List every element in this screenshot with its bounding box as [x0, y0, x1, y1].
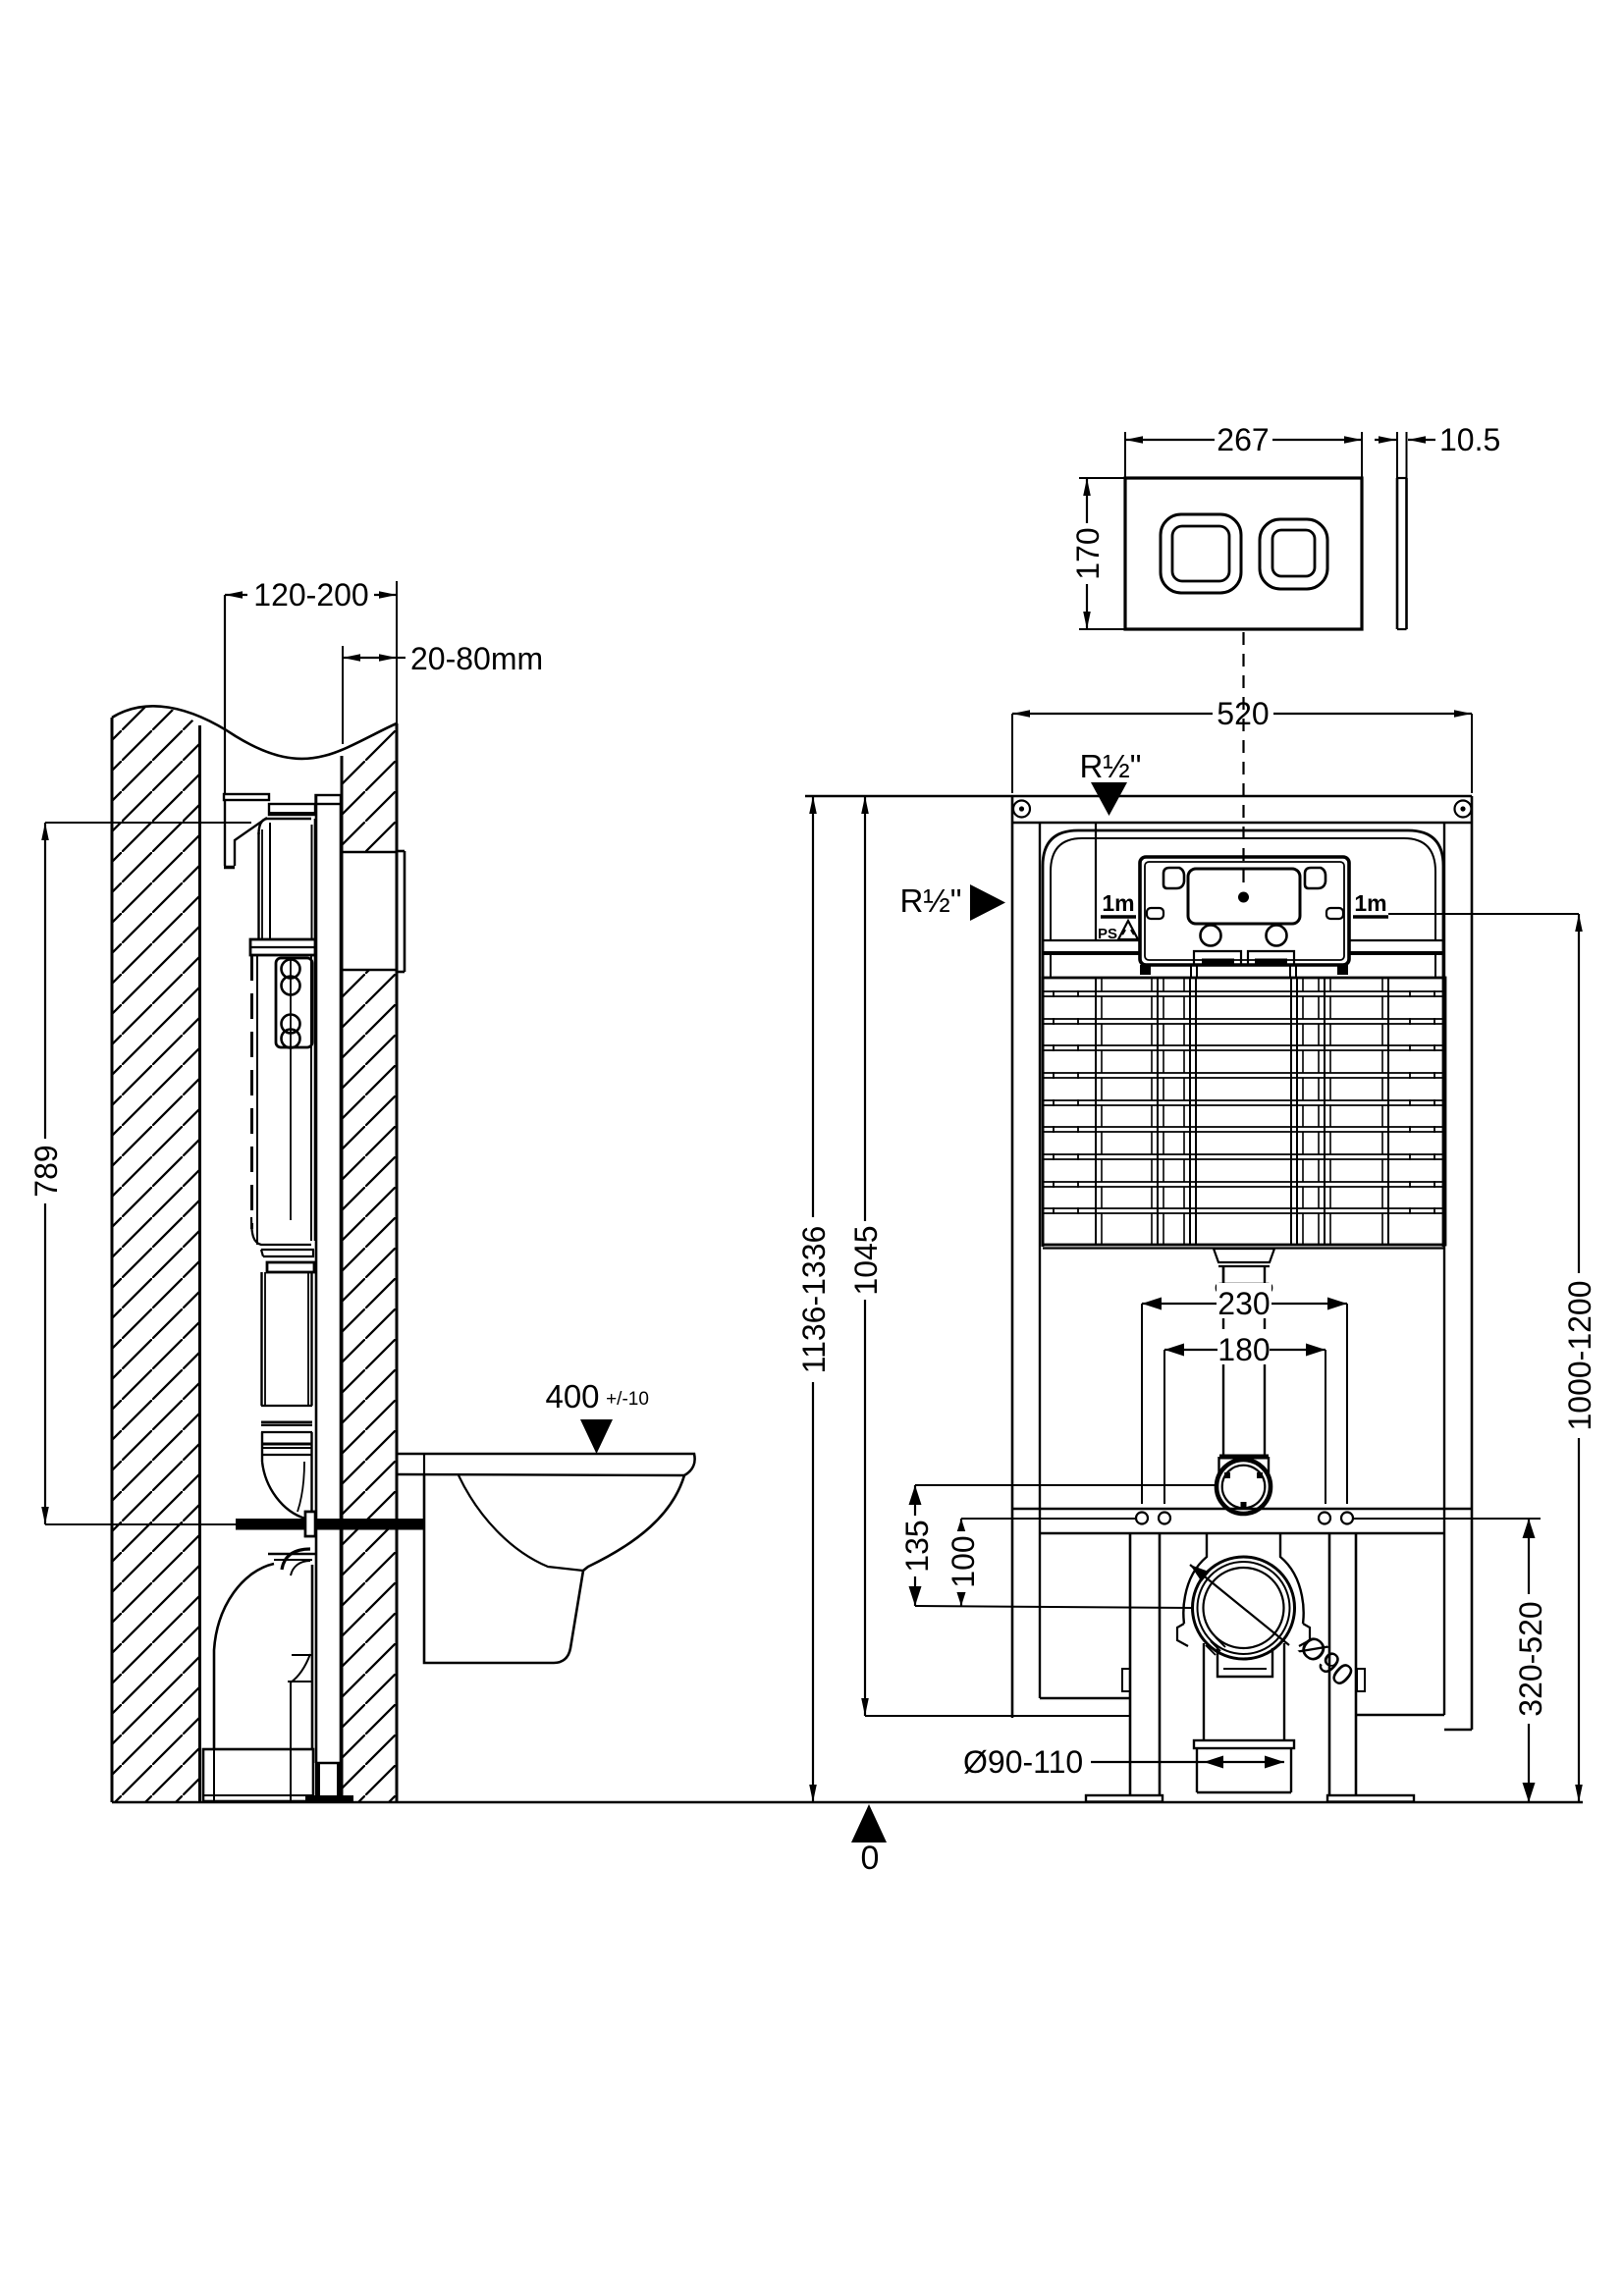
svg-text:180: 180: [1217, 1332, 1270, 1367]
svg-text:1000-1200: 1000-1200: [1562, 1280, 1597, 1430]
svg-text:120-200: 120-200: [253, 577, 368, 613]
svg-text:R½": R½": [1079, 748, 1141, 784]
svg-text:267: 267: [1217, 422, 1269, 457]
svg-text:135: 135: [899, 1520, 935, 1572]
svg-text:10.5: 10.5: [1439, 422, 1500, 457]
svg-text:320-520: 320-520: [1513, 1601, 1548, 1716]
svg-text:1045: 1045: [848, 1225, 884, 1295]
svg-text:20-80mm: 20-80mm: [410, 641, 543, 676]
svg-text:520: 520: [1217, 696, 1269, 731]
svg-text:PS: PS: [1098, 926, 1117, 942]
svg-text:R½": R½": [899, 882, 961, 919]
svg-text:1m: 1m: [1354, 890, 1386, 916]
svg-text:230: 230: [1217, 1286, 1270, 1321]
svg-text:400: 400: [545, 1378, 599, 1415]
svg-text:1136-1336: 1136-1336: [796, 1226, 832, 1374]
svg-text:0: 0: [861, 1840, 880, 1877]
svg-text:1m: 1m: [1102, 890, 1134, 916]
svg-text:+/-10: +/-10: [606, 1389, 649, 1410]
svg-text:170: 170: [1070, 527, 1106, 579]
svg-text:Ø90-110: Ø90-110: [963, 1744, 1083, 1780]
svg-text:789: 789: [28, 1145, 64, 1197]
svg-text:100: 100: [946, 1535, 981, 1587]
